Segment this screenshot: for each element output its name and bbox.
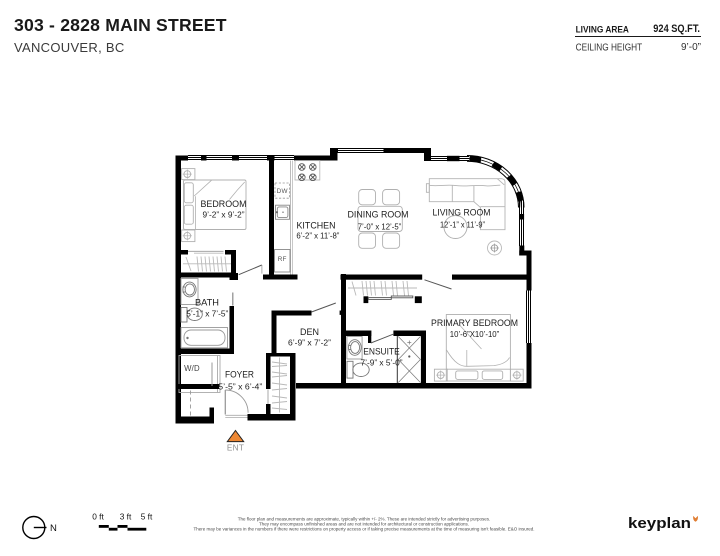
svg-text:6’-9” x 7’-2”: 6’-9” x 7’-2” [288, 337, 331, 347]
svg-text:9’-0”: 9’-0” [681, 42, 702, 53]
svg-text:3 ft: 3 ft [120, 511, 132, 521]
svg-text:N: N [50, 523, 57, 534]
svg-text:BATH: BATH [195, 298, 219, 309]
svg-text:LIVING AREA: LIVING AREA [576, 25, 629, 36]
svg-text:keyplan: keyplan [628, 515, 691, 532]
svg-text:FOYER: FOYER [225, 370, 254, 381]
svg-text:CEILING HEIGHT: CEILING HEIGHT [576, 42, 643, 53]
svg-text:BEDROOM: BEDROOM [201, 199, 247, 210]
svg-text:ENSUITE: ENSUITE [363, 347, 400, 358]
svg-text:7’-0” x 12’-5”: 7’-0” x 12’-5” [358, 222, 402, 232]
svg-text:DW: DW [277, 188, 289, 195]
svg-text:12’-1” x 11’-9”: 12’-1” x 11’-9” [440, 220, 485, 230]
svg-text:PRIMARY BEDROOM: PRIMARY BEDROOM [431, 318, 518, 329]
svg-text:W/D: W/D [184, 364, 200, 373]
svg-text:LIVING ROOM: LIVING ROOM [433, 208, 491, 219]
svg-text:5’-1” x 7’-5”: 5’-1” x 7’-5” [186, 309, 228, 319]
svg-text:ENT: ENT [227, 443, 244, 452]
svg-text:9’-2” x 9’-2”: 9’-2” x 9’-2” [203, 210, 245, 220]
svg-text:10’-6”X10’-10”: 10’-6”X10’-10” [450, 329, 500, 339]
svg-text:DINING ROOM: DINING ROOM [348, 210, 409, 221]
svg-text:924 SQ.FT.: 924 SQ.FT. [653, 23, 700, 35]
svg-text:5 ft: 5 ft [141, 511, 153, 521]
svg-text:0 ft: 0 ft [92, 511, 104, 521]
svg-text:6’-2” x 11’-8”: 6’-2” x 11’-8” [296, 231, 339, 241]
svg-text:7’-9” x 5’-0”: 7’-9” x 5’-0” [361, 357, 403, 367]
svg-text:RF: RF [278, 256, 287, 263]
svg-text:There may be variances in the: There may be variances in the numbers if… [193, 527, 534, 532]
svg-text:5’-5” x 6’-4”: 5’-5” x 6’-4” [218, 381, 262, 391]
